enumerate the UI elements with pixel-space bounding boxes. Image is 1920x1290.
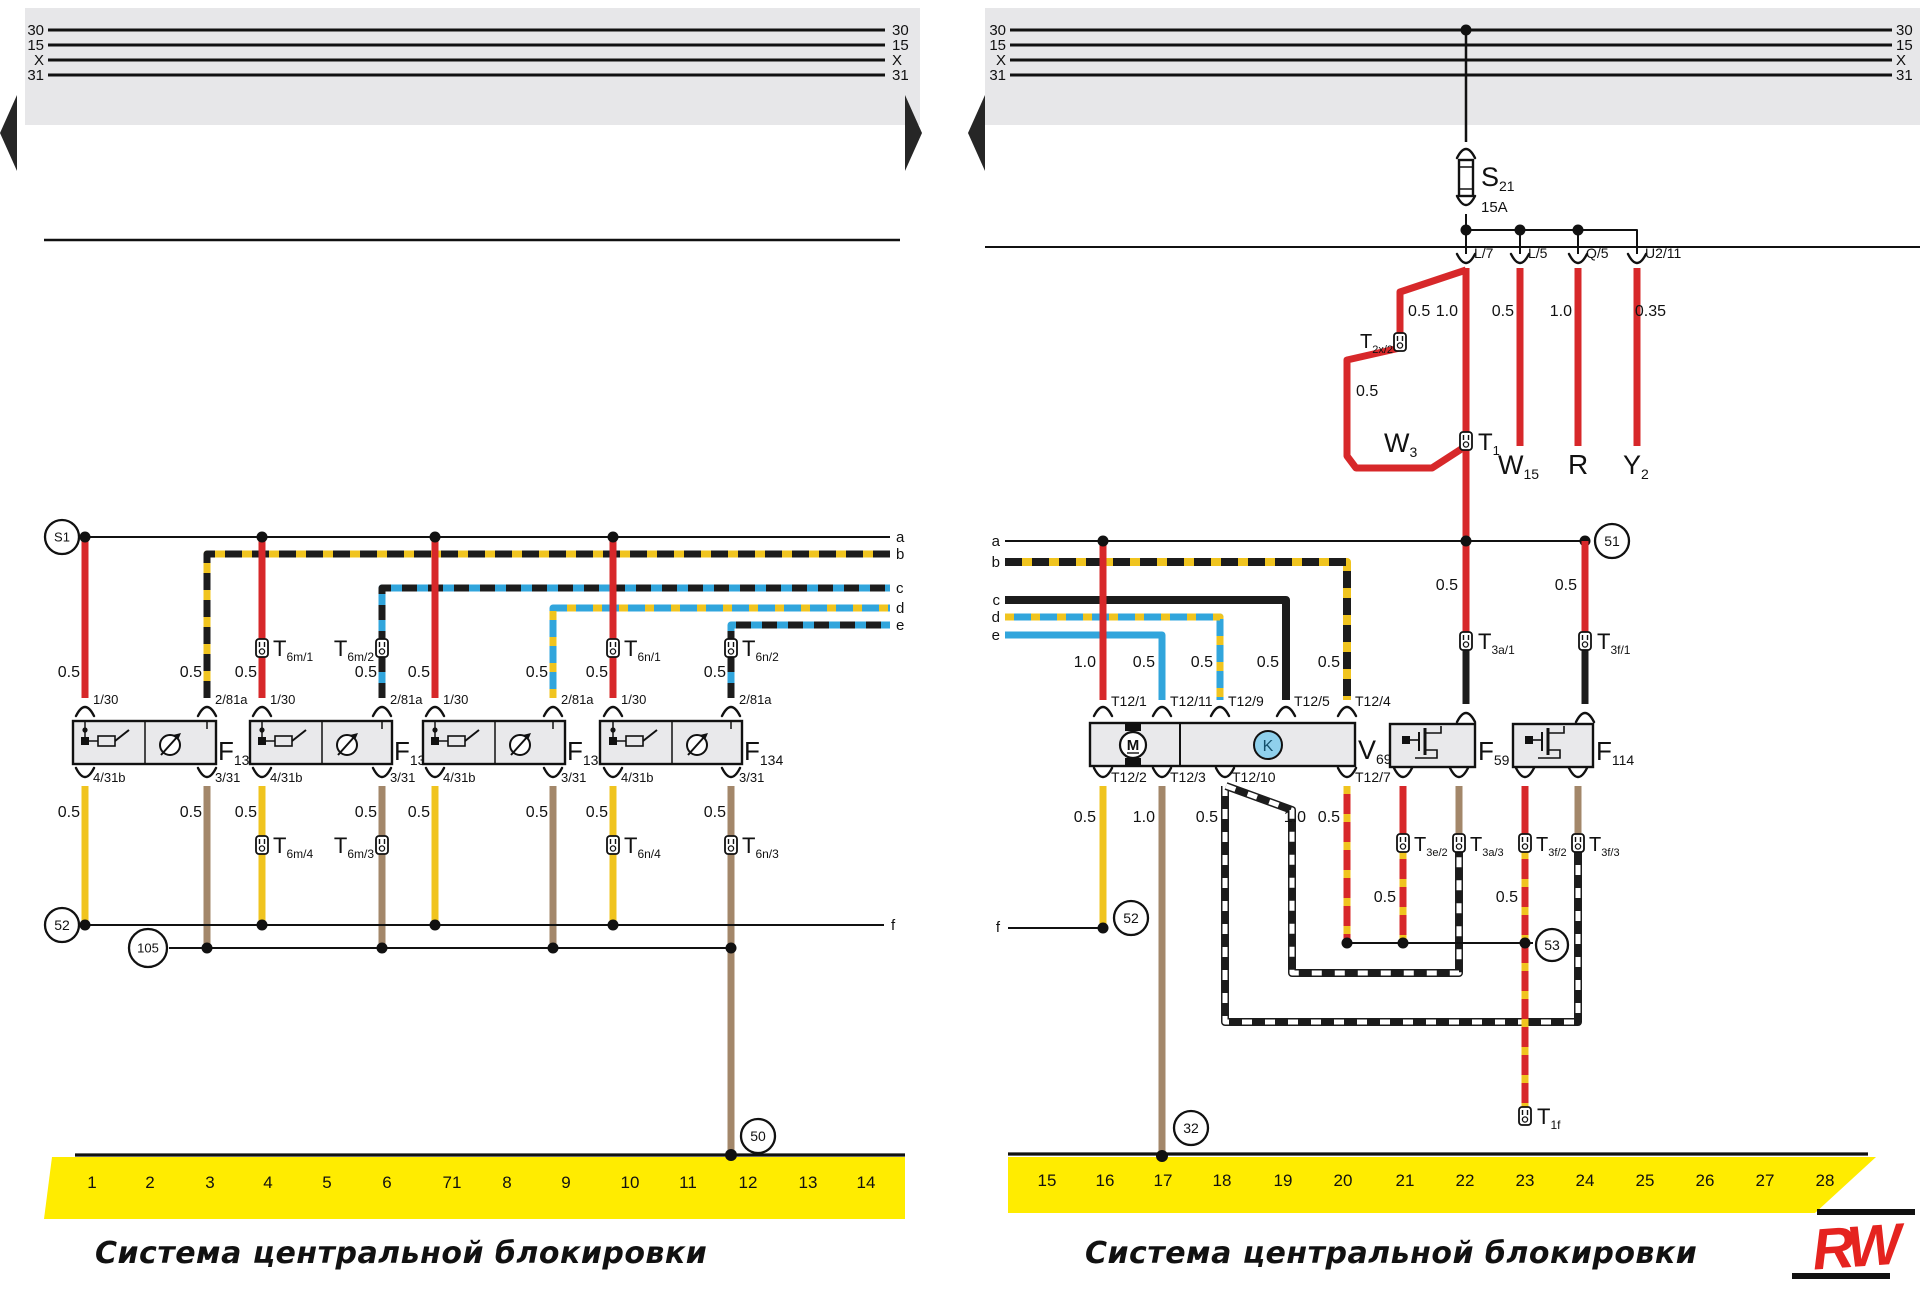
gauge: 0.5 xyxy=(704,804,726,821)
svg-text:2: 2 xyxy=(145,1173,154,1192)
connector-icon xyxy=(1579,632,1591,650)
connector-icon xyxy=(376,639,388,657)
svg-text:24: 24 xyxy=(1576,1171,1595,1190)
pinU xyxy=(1277,707,1295,716)
gauge: 0.5 xyxy=(1196,809,1218,826)
label-w3: W3 xyxy=(1384,428,1417,460)
gauge: 0.5 xyxy=(355,664,377,681)
pinU xyxy=(722,707,740,716)
label-t6n2: T6n/2 xyxy=(742,636,779,664)
connector-icon xyxy=(607,639,619,657)
pinD xyxy=(1569,768,1587,777)
caption-right: Система центральной блокировки xyxy=(1085,1236,1697,1271)
caption-left: Система центральной блокировки xyxy=(95,1236,707,1271)
net-letter: a xyxy=(992,533,1001,550)
pin-label: 3/31 xyxy=(561,770,586,785)
gauge: 1.0 xyxy=(1550,303,1572,320)
svg-text:K: K xyxy=(1263,738,1274,755)
dot xyxy=(430,532,441,543)
label-t6n1: T6n/1 xyxy=(624,636,661,664)
gauge: 0.5 xyxy=(586,664,608,681)
node-105: 105 xyxy=(129,929,167,967)
pin-label: 3/31 xyxy=(739,770,764,785)
pinD xyxy=(1457,254,1475,263)
relay-f59: F59 xyxy=(1390,724,1510,768)
svg-text:10: 10 xyxy=(621,1173,640,1192)
publisher-logo: RW xyxy=(1792,1209,1915,1283)
svg-text:13: 13 xyxy=(799,1173,818,1192)
pinU xyxy=(1457,713,1475,722)
net-letter: f xyxy=(996,919,1001,936)
pinD xyxy=(1394,768,1412,777)
svg-text:18: 18 xyxy=(1213,1171,1232,1190)
pin-label: 4/31b xyxy=(621,770,654,785)
svg-text:15: 15 xyxy=(1038,1171,1057,1190)
pinU xyxy=(76,707,94,716)
svg-text:S1: S1 xyxy=(54,530,70,545)
node-s1: S1 xyxy=(45,520,79,554)
node-32: 32 xyxy=(1174,1111,1208,1145)
node-52: 52 xyxy=(45,908,79,942)
svg-text:26: 26 xyxy=(1696,1171,1715,1190)
wire-d-right xyxy=(1005,617,1220,700)
svg-text:51: 51 xyxy=(1604,533,1620,549)
dot xyxy=(1573,225,1584,236)
pinU xyxy=(604,707,622,716)
bus-label: 31 xyxy=(27,67,44,84)
dot xyxy=(1398,938,1409,949)
relay-f114: F114 xyxy=(1513,724,1634,768)
pinD xyxy=(1569,254,1587,263)
pinD xyxy=(1457,196,1475,205)
pin-label: 2/81a xyxy=(390,692,423,707)
dot xyxy=(548,943,559,954)
connector-icon xyxy=(376,836,388,854)
connector-icon xyxy=(1460,432,1472,450)
gauge: 0.5 xyxy=(1496,889,1518,906)
label-s21: S21 xyxy=(1481,162,1515,194)
pinU xyxy=(1211,707,1229,716)
dot xyxy=(257,920,268,931)
svg-text:16: 16 xyxy=(1096,1171,1115,1190)
label-t2x2: T2x/2 xyxy=(1360,331,1393,356)
dot xyxy=(608,920,619,931)
svg-text:27: 27 xyxy=(1756,1171,1775,1190)
fuse-s21-icon xyxy=(1459,160,1473,196)
pin-label: 3/31 xyxy=(390,770,415,785)
pin-label: T12/3 xyxy=(1170,769,1206,785)
svg-text:17: 17 xyxy=(1154,1171,1173,1190)
svg-text:V69: V69 xyxy=(1358,735,1392,767)
node-53: 53 xyxy=(1536,929,1568,961)
label-t3f3: T3f/3 xyxy=(1589,834,1620,859)
svg-text:4: 4 xyxy=(263,1173,272,1192)
gauge: 0.5 xyxy=(1408,303,1430,320)
label-t6m3: T6m/3 xyxy=(334,833,374,861)
gauge: 0.5 xyxy=(408,664,430,681)
dot xyxy=(725,1149,737,1161)
label-t3a1: T3a/1 xyxy=(1478,629,1515,657)
pinU xyxy=(1153,707,1171,716)
dot xyxy=(80,532,91,543)
bus-label: 31 xyxy=(892,67,909,84)
pin-label: T12/10 xyxy=(1232,769,1276,785)
pinD xyxy=(1450,768,1468,777)
pin-label: 1/30 xyxy=(270,692,295,707)
svg-text:F114: F114 xyxy=(1596,736,1634,768)
svg-text:52: 52 xyxy=(54,917,70,933)
svg-text:9: 9 xyxy=(561,1173,570,1192)
gauge: 0.5 xyxy=(235,664,257,681)
pin-label: 3/31 xyxy=(215,770,240,785)
gauge: 0.5 xyxy=(704,664,726,681)
gauge: 0.5 xyxy=(408,804,430,821)
net-letter: a xyxy=(896,529,905,546)
svg-text:M: M xyxy=(1127,737,1140,754)
connector-icon xyxy=(607,836,619,854)
connector-icon xyxy=(1572,834,1584,852)
net-letter: e xyxy=(992,627,1000,644)
pin-label: T12/9 xyxy=(1228,693,1264,709)
pin-label: 4/31b xyxy=(93,770,126,785)
label-t6m2: T6m/2 xyxy=(334,636,374,664)
label-t6n3: T6n/3 xyxy=(742,833,779,861)
pin-label: 2/81a xyxy=(739,692,772,707)
svg-text:25: 25 xyxy=(1636,1171,1655,1190)
gauge: 0.5 xyxy=(58,664,80,681)
gauge: 1.0 xyxy=(1133,809,1155,826)
pinD xyxy=(373,768,391,777)
gauge: 0.5 xyxy=(1492,303,1514,320)
pinU xyxy=(1094,707,1112,716)
dot xyxy=(80,920,91,931)
bus-band-left xyxy=(25,8,920,125)
svg-text:12: 12 xyxy=(739,1173,758,1192)
svg-text:5: 5 xyxy=(322,1173,331,1192)
connector-icon xyxy=(1453,834,1465,852)
pin-label: L/5 xyxy=(1528,245,1548,261)
connector-icon xyxy=(1394,333,1406,351)
pinD xyxy=(198,768,216,777)
pin-label: 2/81a xyxy=(561,692,594,707)
page-arrow-left-icon xyxy=(0,95,17,171)
dot xyxy=(202,943,213,954)
net-letter: b xyxy=(992,554,1000,571)
net-letter: d xyxy=(992,609,1000,626)
svg-text:F134: F134 xyxy=(744,736,783,768)
pin-label: T12/4 xyxy=(1355,693,1391,709)
svg-text:28: 28 xyxy=(1816,1171,1835,1190)
pin-label: 1/30 xyxy=(93,692,118,707)
terminal-strip-right xyxy=(1008,1154,1876,1213)
connector-icon xyxy=(1519,1107,1531,1125)
pinU xyxy=(1338,707,1356,716)
dot xyxy=(257,532,268,543)
connector-icon xyxy=(256,836,268,854)
pinD xyxy=(1094,768,1112,777)
gauge: 0.5 xyxy=(1191,654,1213,671)
pinU xyxy=(373,707,391,716)
pinD xyxy=(722,768,740,777)
gauge: 1.0 xyxy=(1284,809,1306,826)
node-51: 51 xyxy=(1595,524,1629,558)
pinU xyxy=(198,707,216,716)
node-50: 50 xyxy=(741,1119,775,1153)
bus-label: 31 xyxy=(989,67,1006,84)
gauge: 0.5 xyxy=(180,664,202,681)
label-w15: W15 xyxy=(1498,450,1539,482)
label-t1f: T1f xyxy=(1537,1104,1561,1132)
label-t3a3: T3a/3 xyxy=(1470,834,1504,859)
gauge: 0.5 xyxy=(1318,809,1340,826)
svg-text:23: 23 xyxy=(1516,1171,1535,1190)
label-t3e2: T3e/2 xyxy=(1414,834,1448,859)
gauge: 0.5 xyxy=(58,804,80,821)
dot xyxy=(726,943,737,954)
pinU xyxy=(1576,713,1594,722)
terminal-strip-left xyxy=(44,1155,905,1219)
net-letter: b xyxy=(896,546,904,563)
pin-label: T12/11 xyxy=(1170,693,1213,709)
svg-text:21: 21 xyxy=(1396,1171,1415,1190)
pin-label: 2/81a xyxy=(215,692,248,707)
net-letter: f xyxy=(891,917,896,934)
pinD xyxy=(604,768,622,777)
connector-icon xyxy=(256,639,268,657)
gauge: 0.5 xyxy=(1356,383,1378,400)
gauge: 0.5 xyxy=(1318,654,1340,671)
svg-text:6: 6 xyxy=(382,1173,391,1192)
dot xyxy=(1098,536,1109,547)
svg-text:14: 14 xyxy=(857,1173,876,1192)
pinD xyxy=(76,768,94,777)
svg-text:19: 19 xyxy=(1274,1171,1293,1190)
net-letter: c xyxy=(896,580,904,597)
gauge: 0.5 xyxy=(1436,577,1458,594)
label-t3f2: T3f/2 xyxy=(1536,834,1567,859)
svg-text:32: 32 xyxy=(1183,1120,1199,1136)
pinU xyxy=(544,707,562,716)
label-r: R xyxy=(1568,449,1588,480)
net-letter: d xyxy=(896,600,904,617)
lock-module-f132: F132 xyxy=(250,721,433,768)
label-t6m4: T6m/4 xyxy=(273,833,313,861)
dot xyxy=(1520,938,1531,949)
pin-label: 1/30 xyxy=(443,692,468,707)
gauge: 0.5 xyxy=(526,664,548,681)
pin-label: L/7 xyxy=(1474,245,1494,261)
svg-text:52: 52 xyxy=(1123,910,1139,926)
pinD xyxy=(544,768,562,777)
node-52: 52 xyxy=(1114,901,1148,935)
page-arrow-left-icon xyxy=(968,95,985,171)
dot xyxy=(377,943,388,954)
gauge: 0.5 xyxy=(586,804,608,821)
pin-label: T12/5 xyxy=(1294,693,1330,709)
dot xyxy=(430,920,441,931)
pinD xyxy=(1628,254,1646,263)
net-letter: c xyxy=(993,592,1001,609)
lock-module-f134: F134 xyxy=(600,721,783,768)
gauge: 0.5 xyxy=(1374,889,1396,906)
svg-text:F59: F59 xyxy=(1478,736,1510,768)
gauge: 0.5 xyxy=(1133,654,1155,671)
gauge: 0.5 xyxy=(235,804,257,821)
connector-icon xyxy=(1519,834,1531,852)
fuse-rating: 15A xyxy=(1481,199,1508,216)
svg-text:3: 3 xyxy=(205,1173,214,1192)
svg-text:20: 20 xyxy=(1334,1171,1353,1190)
connector-icon xyxy=(725,836,737,854)
bus-band-right xyxy=(985,8,1920,125)
dot xyxy=(1342,938,1353,949)
lock-module-f133: F133 xyxy=(423,721,606,768)
pin-label: 4/31b xyxy=(443,770,476,785)
dot xyxy=(1461,225,1472,236)
pinD xyxy=(1338,768,1356,777)
gauge: 0.35 xyxy=(1635,303,1666,320)
net-letter: e xyxy=(896,617,904,634)
label-y2: Y2 xyxy=(1623,450,1649,482)
label-t1: T1 xyxy=(1478,429,1500,458)
label-t6n4: T6n/4 xyxy=(624,833,661,861)
pinD xyxy=(1153,768,1171,777)
dot xyxy=(1156,1150,1168,1162)
pin-label: T12/7 xyxy=(1355,769,1391,785)
pinU xyxy=(1457,149,1475,158)
svg-text:11: 11 xyxy=(679,1173,697,1192)
wire-b-right xyxy=(1005,562,1347,700)
connector-icon xyxy=(1397,834,1409,852)
svg-text:22: 22 xyxy=(1456,1171,1475,1190)
pin-label: 4/31b xyxy=(270,770,303,785)
svg-text:RW: RW xyxy=(1810,1211,1908,1282)
pinD xyxy=(1516,768,1534,777)
wiring-diagram-page: 3015X313015X31abcdeS1T6m/1T6m/2T6n/1T6n/… xyxy=(0,0,1920,1290)
pinD xyxy=(1511,254,1529,263)
svg-text:50: 50 xyxy=(750,1128,766,1144)
dot xyxy=(1461,25,1472,36)
dot xyxy=(1098,923,1109,934)
dot xyxy=(1461,536,1472,547)
pin-label: 1/30 xyxy=(621,692,646,707)
svg-text:8: 8 xyxy=(502,1173,511,1192)
svg-text:1: 1 xyxy=(87,1173,96,1192)
gauge: 1.0 xyxy=(1074,654,1096,671)
dot xyxy=(608,532,619,543)
pinU xyxy=(426,707,444,716)
svg-text:71: 71 xyxy=(443,1173,462,1192)
gauge: 1.0 xyxy=(1436,303,1458,320)
gauge: 0.5 xyxy=(1555,577,1577,594)
dot xyxy=(1515,225,1526,236)
svg-text:53: 53 xyxy=(1544,937,1560,953)
gauge: 0.5 xyxy=(180,804,202,821)
pin-label: T12/2 xyxy=(1111,769,1147,785)
gauge: 0.5 xyxy=(526,804,548,821)
bus-label: 31 xyxy=(1896,67,1913,84)
pinD xyxy=(253,768,271,777)
pin-label: Q/5 xyxy=(1586,245,1609,261)
connector-icon xyxy=(725,639,737,657)
pinU xyxy=(253,707,271,716)
svg-text:105: 105 xyxy=(137,941,159,956)
wiring-diagram-svg: 3015X313015X31abcdeS1T6m/1T6m/2T6n/1T6n/… xyxy=(0,0,1920,1290)
label-t3f1: T3f/1 xyxy=(1597,629,1631,657)
lock-module-f131: F131 xyxy=(73,721,257,768)
pin-label: T12/1 xyxy=(1111,693,1147,709)
label-t6m1: T6m/1 xyxy=(273,636,313,664)
gauge: 0.5 xyxy=(355,804,377,821)
pin-label: U2/11 xyxy=(1645,245,1682,261)
connector-icon xyxy=(1460,632,1472,650)
gauge: 0.5 xyxy=(1257,654,1279,671)
gauge: 0.5 xyxy=(1074,809,1096,826)
pinD xyxy=(426,768,444,777)
